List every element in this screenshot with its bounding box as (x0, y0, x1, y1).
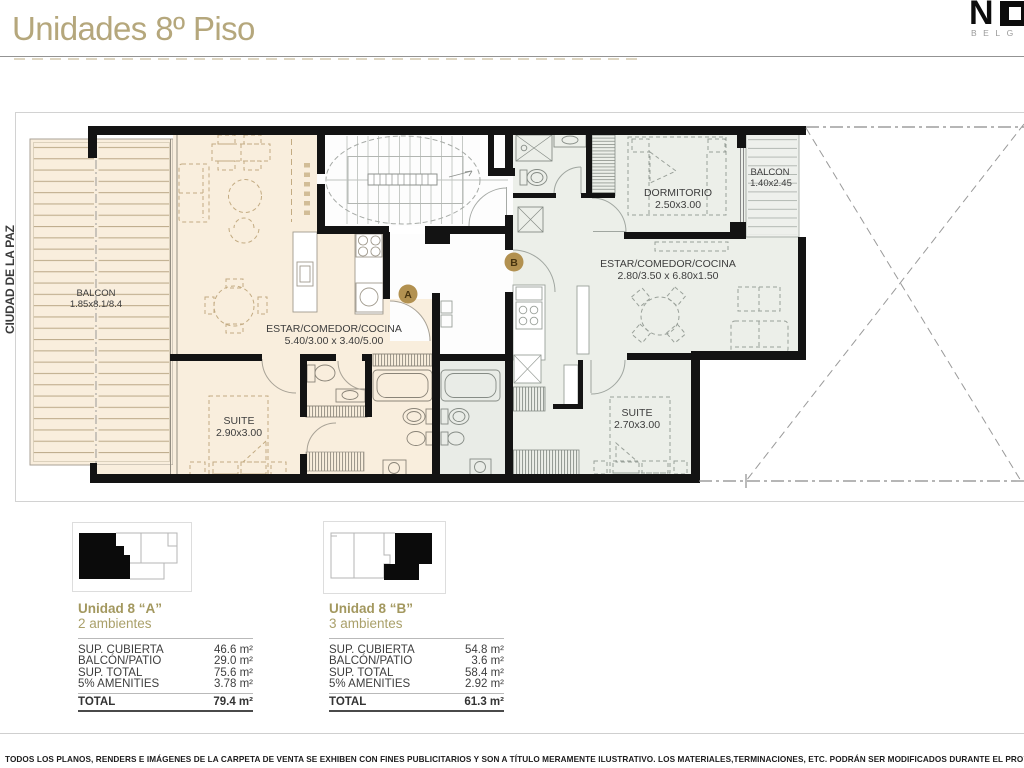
svg-text:2.80/3.50 x 6.80x1.50: 2.80/3.50 x 6.80x1.50 (618, 270, 719, 282)
svg-text:SUITE: SUITE (622, 407, 653, 419)
svg-text:ESTAR/COMEDOR/COCINA: ESTAR/COMEDOR/COCINA (266, 323, 402, 335)
svg-text:5.40/3.00 x 3.40/5.00: 5.40/3.00 x 3.40/5.00 (285, 335, 384, 347)
svg-text:1.40x2.45: 1.40x2.45 (750, 178, 792, 189)
svg-text:2.90x3.00: 2.90x3.00 (216, 427, 262, 439)
svg-text:2.70x3.00: 2.70x3.00 (614, 419, 660, 431)
svg-text:2.50x3.00: 2.50x3.00 (655, 199, 701, 211)
svg-text:SUITE: SUITE (224, 415, 255, 427)
svg-text:B: B (510, 257, 518, 269)
svg-text:BALCON: BALCON (76, 288, 115, 299)
svg-text:ESTAR/COMEDOR/COCINA: ESTAR/COMEDOR/COCINA (600, 258, 736, 270)
svg-text:DORMITORIO: DORMITORIO (644, 187, 712, 199)
svg-text:A: A (404, 289, 412, 301)
svg-text:1.85x8.1/8.4: 1.85x8.1/8.4 (70, 299, 122, 310)
svg-text:BALCON: BALCON (750, 167, 789, 178)
